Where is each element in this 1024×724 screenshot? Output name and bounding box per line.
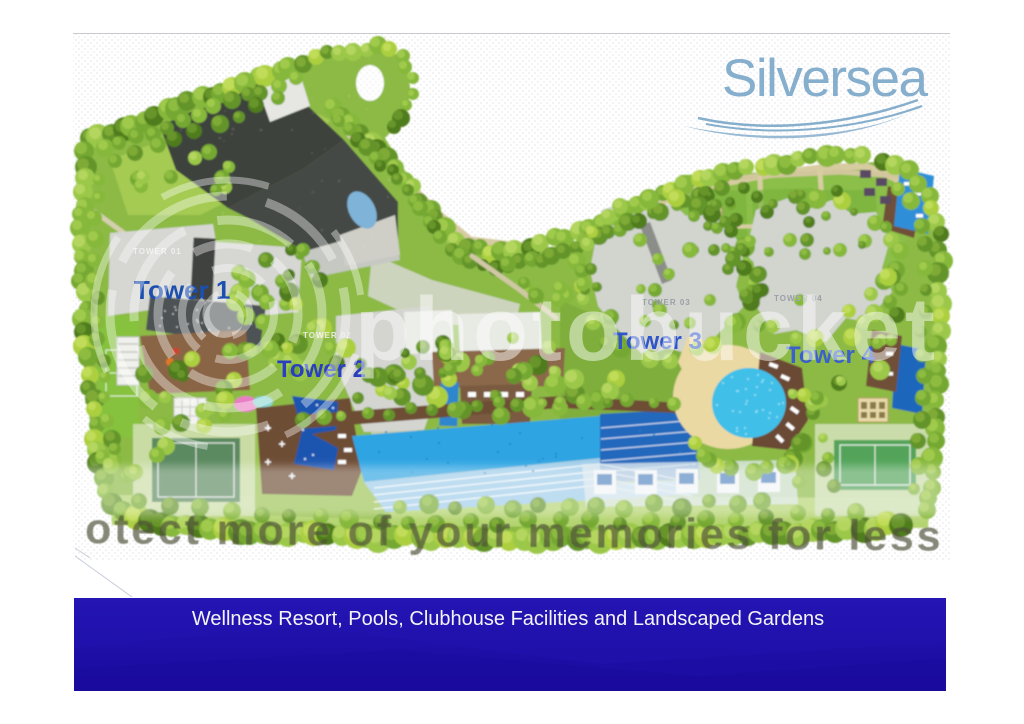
svg-text:photobucket: photobucket <box>355 280 939 380</box>
svg-text:otect more of your memories fo: otect more of your memories for less <box>85 505 944 560</box>
svg-text:Wellness Resort, Pools, Clubho: Wellness Resort, Pools, Clubhouse Facili… <box>192 608 824 630</box>
svg-text:Silversea: Silversea <box>722 49 929 108</box>
